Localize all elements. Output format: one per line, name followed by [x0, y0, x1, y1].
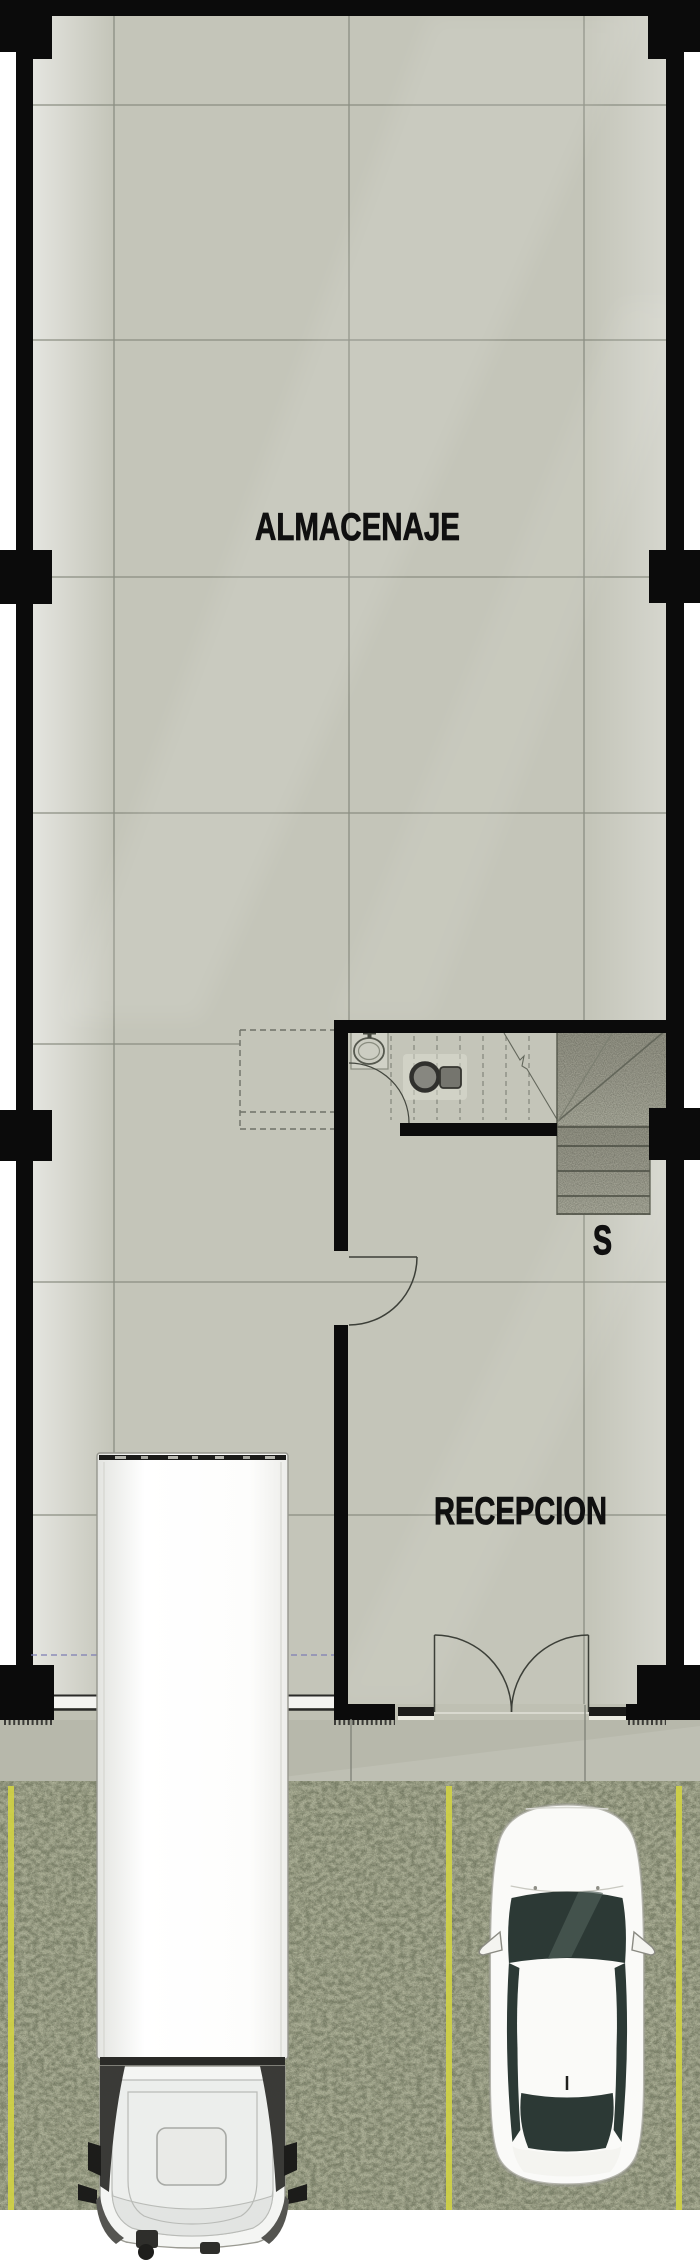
svg-text:S: S — [593, 1217, 612, 1263]
svg-text:ALMACENAJE: ALMACENAJE — [255, 506, 460, 549]
svg-text:RECEPCION: RECEPCION — [434, 1490, 607, 1533]
